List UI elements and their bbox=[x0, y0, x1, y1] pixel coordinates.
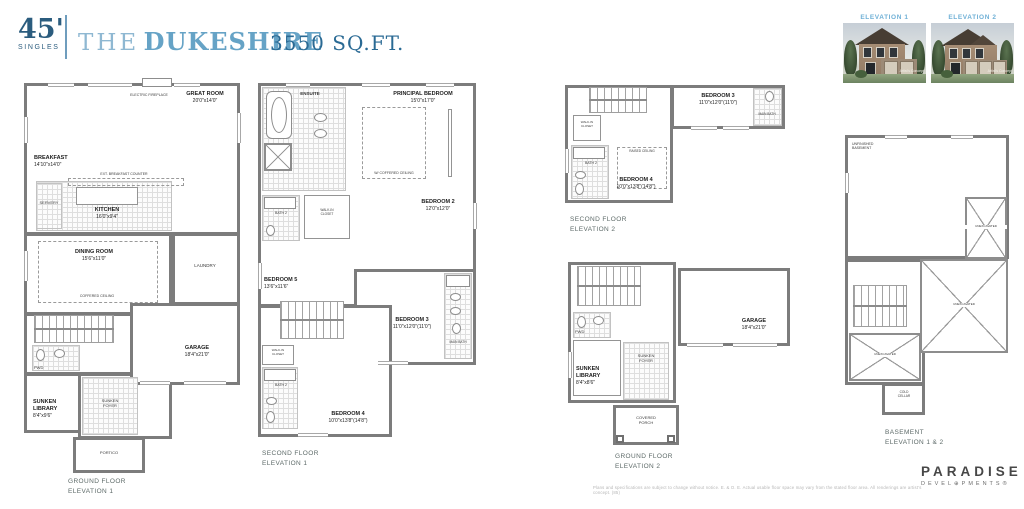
room-label-main-bath: MAIN BATH bbox=[749, 113, 785, 117]
bathtub-icon bbox=[573, 147, 605, 159]
bush-icon bbox=[941, 70, 953, 78]
plan-basement: UNFINISHED BASEMENT UNEXCAVATED UNEXCAVA… bbox=[843, 133, 1018, 453]
watermark: Artist's Concept bbox=[900, 69, 924, 73]
room-label-kitchen: KITCHEN16'0"x9'4" bbox=[84, 207, 130, 220]
window-icon bbox=[378, 361, 408, 365]
room-label-servery: SERVERY bbox=[36, 201, 62, 206]
toilet-icon bbox=[452, 323, 461, 334]
window-icon bbox=[24, 251, 28, 281]
toilet-icon bbox=[266, 225, 275, 236]
plan-caption: GROUND FLOOR ELEVATION 1 bbox=[68, 477, 126, 497]
bathtub-icon bbox=[264, 197, 296, 209]
window-icon bbox=[863, 47, 872, 58]
garage-door-opening bbox=[140, 381, 170, 385]
toilet-icon bbox=[266, 411, 275, 423]
window-icon bbox=[691, 126, 717, 130]
room-label-bath2: BATH 2 bbox=[579, 161, 603, 165]
servery-floor bbox=[36, 183, 62, 229]
room-label-bedroom5: BEDROOM 513'6"x11'6" bbox=[264, 277, 324, 290]
sink-icon bbox=[54, 349, 65, 358]
room-label-garage: GARAGE18'4"x21'0" bbox=[162, 345, 232, 358]
sink-icon bbox=[266, 397, 277, 405]
room-label-laundry: LAUNDRY bbox=[182, 263, 228, 268]
room-label-bedroom2: BEDROOM 212'0"x12'0" bbox=[406, 199, 470, 212]
room-label-bath2: BATH 2 bbox=[268, 211, 294, 215]
room-label-porch: COVERED PORCH bbox=[621, 416, 671, 426]
garage-door-opening bbox=[687, 343, 723, 347]
room-label-dining: DINING ROOM15'6"x11'0" bbox=[54, 249, 134, 262]
sink-icon bbox=[575, 171, 586, 179]
room-label-pwd: PWD bbox=[575, 330, 593, 335]
room-label-foyer: SUNKEN FOYER bbox=[625, 354, 667, 364]
window-icon bbox=[426, 83, 454, 87]
window-icon bbox=[975, 48, 984, 59]
room-label-ensuite: ENSUITE bbox=[294, 91, 326, 96]
room-label-bedroom3: BEDROOM 311'0"x12'0"(11'0") bbox=[681, 93, 755, 106]
room-label-library: SUNKEN LIBRARY8'4"x9'6" bbox=[33, 399, 83, 419]
window-icon bbox=[24, 117, 28, 143]
cold-cellar bbox=[882, 383, 925, 415]
counter-note: EXT. BREAKFAST COUNTER bbox=[82, 172, 166, 176]
room-label-bedroom4: BEDROOM 410'0"x13'8"(14'8") bbox=[306, 411, 390, 424]
window-icon bbox=[949, 48, 958, 59]
room-label-breakfast: BREAKFAST14'10"x14'0" bbox=[34, 155, 94, 168]
window-icon bbox=[237, 113, 241, 143]
unexcavated-label: UNEXCAVATED bbox=[865, 353, 905, 357]
stair-rail bbox=[280, 319, 344, 321]
disclaimer-text: Plans and specifications are subject to … bbox=[593, 485, 923, 495]
model-prefix: THE bbox=[78, 30, 139, 56]
plan-second-floor-elevation-2: WALK-IN CLOSET BATH 2 RAISED CEILING BED… bbox=[565, 83, 793, 243]
room-label-bedroom4: BEDROOM 410'0"x13'8"(14'8") bbox=[601, 177, 671, 190]
watermark: Artist's Concept bbox=[988, 69, 1012, 73]
dining-note: COFFERED CEILING bbox=[72, 294, 122, 298]
window-icon bbox=[565, 149, 569, 173]
plan-ground-floor-elevation-2: PWD SUNKEN LIBRARY8'4"x8'6" SUNKEN FOYER… bbox=[565, 260, 793, 470]
sink-icon bbox=[314, 113, 327, 122]
glass-shower bbox=[264, 143, 292, 171]
toilet-icon bbox=[36, 349, 45, 361]
plan-caption: GROUND FLOOR ELEVATION 2 bbox=[615, 452, 673, 472]
header-divider bbox=[65, 15, 67, 59]
plan-caption: SECOND FLOOR ELEVATION 1 bbox=[262, 449, 319, 469]
toilet-icon bbox=[575, 183, 584, 195]
window-icon bbox=[885, 135, 907, 139]
foyer-floor bbox=[623, 342, 669, 400]
breakfast-counter bbox=[68, 178, 184, 186]
lot-badge: 45' SINGLES bbox=[18, 16, 64, 51]
window-icon bbox=[951, 135, 973, 139]
unexcavated-label: UNEXCAVATED bbox=[965, 225, 1007, 229]
bathtub-icon bbox=[271, 97, 287, 133]
bathtub-icon bbox=[446, 275, 470, 287]
cold-cellar-label: COLD CELLAR bbox=[891, 391, 917, 399]
sink-icon bbox=[450, 307, 461, 315]
tree-icon bbox=[844, 40, 857, 76]
window-icon bbox=[48, 83, 74, 87]
window-icon bbox=[362, 83, 390, 87]
room-label-foyer: SUNKEN FOYER bbox=[88, 399, 132, 409]
room-label-pwd: PWD bbox=[34, 366, 52, 371]
bush-icon bbox=[855, 70, 867, 78]
elevation-2-rendering: Artist's Concept bbox=[931, 23, 1014, 83]
sink-icon bbox=[593, 316, 604, 325]
elevation-1-rendering: Artist's Concept bbox=[843, 23, 926, 83]
plan-ground-floor-elevation-1: GREAT ROOM20'0"x14'0" ELECTRIC FIREPLACE… bbox=[24, 83, 246, 503]
wic-label: WALK-IN CLOSET bbox=[310, 209, 344, 217]
wic-label: WALK-IN CLOSET bbox=[575, 121, 599, 128]
wic-label: WALK-IN CLOSET bbox=[264, 349, 292, 356]
bathtub-icon bbox=[264, 369, 296, 381]
room-label-garage: GARAGE18'4"x21'0" bbox=[723, 318, 785, 331]
brand-name: PARADISE bbox=[921, 464, 1022, 479]
roof-shape bbox=[855, 28, 909, 45]
garage-door-icon bbox=[965, 61, 978, 75]
unexcavated-label: UNEXCAVATED bbox=[938, 303, 990, 307]
room-label-great-room: GREAT ROOM20'0"x14'0" bbox=[174, 91, 236, 104]
lot-type: SINGLES bbox=[18, 44, 64, 51]
window-icon bbox=[845, 173, 849, 193]
window-icon bbox=[723, 126, 749, 130]
garage-block bbox=[130, 303, 240, 385]
porch-post bbox=[616, 435, 624, 443]
window-icon bbox=[889, 47, 898, 58]
sink-icon bbox=[450, 293, 461, 301]
stair-rail bbox=[589, 99, 647, 101]
stair-rail bbox=[34, 328, 114, 330]
brand-logo: PARADISE DEVEL⊕PMENTS® bbox=[921, 464, 1022, 487]
square-footage: 3550 SQ.FT. bbox=[270, 31, 404, 55]
window-icon bbox=[258, 263, 262, 289]
garage-door-icon bbox=[884, 61, 898, 75]
window-icon bbox=[568, 352, 572, 378]
room-label-bedroom3: BEDROOM 311'0"x12'0"(11'0") bbox=[370, 317, 454, 330]
principal-note: W/ COFFERED CEILING bbox=[364, 171, 424, 175]
brochure-page: 45' SINGLES THE DUKESHIRE 3550 SQ.FT. EL… bbox=[0, 0, 1024, 509]
window-icon bbox=[962, 48, 971, 59]
unexcavated-area bbox=[849, 333, 921, 381]
unfinished-basement-label: UNFINISHED BASEMENT bbox=[852, 142, 888, 150]
fireplace-label: ELECTRIC FIREPLACE bbox=[128, 93, 170, 97]
garage-block bbox=[678, 268, 790, 346]
stair-rail bbox=[853, 305, 907, 307]
window-icon bbox=[473, 203, 477, 229]
plan-second-floor-elevation-1: ENSUITE PRINCIPAL BEDROOM15'0"x17'0" W/ … bbox=[258, 83, 482, 503]
stair-rail bbox=[577, 285, 641, 287]
room-label-portico: PORTICO bbox=[77, 451, 141, 456]
elevation-1-label: ELEVATION 1 bbox=[843, 14, 926, 21]
sink-icon bbox=[314, 129, 327, 138]
plan-caption: SECOND FLOOR ELEVATION 2 bbox=[570, 215, 627, 235]
garage-door-opening bbox=[733, 343, 777, 347]
coffered-ceiling-outline bbox=[362, 107, 426, 179]
room-label-bath2: BATH 2 bbox=[268, 383, 294, 387]
plan-caption: BASEMENT ELEVATION 1 & 2 bbox=[885, 428, 944, 448]
porch-post bbox=[667, 435, 675, 443]
lot-size: 45' bbox=[18, 16, 64, 43]
elevation-2-label: ELEVATION 2 bbox=[931, 14, 1014, 21]
garage-door-opening bbox=[184, 381, 226, 385]
dresser bbox=[448, 109, 452, 177]
room-label-main-bath: MAIN BATH bbox=[440, 341, 476, 345]
window-icon bbox=[298, 433, 328, 437]
window-icon bbox=[174, 83, 200, 87]
fireplace-icon bbox=[142, 78, 172, 87]
room-label-principal: PRINCIPAL BEDROOM15'0"x17'0" bbox=[376, 91, 470, 104]
brand-sub: DEVEL⊕PMENTS® bbox=[921, 481, 1022, 487]
walk-in-closet bbox=[304, 195, 350, 239]
toilet-icon bbox=[765, 91, 774, 102]
raised-ceiling-note: RAISED CEILING bbox=[621, 150, 663, 154]
toilet-icon bbox=[577, 316, 586, 328]
laundry-block bbox=[172, 233, 240, 305]
kitchen-island bbox=[76, 187, 138, 205]
room-label-library: SUNKEN LIBRARY8'4"x8'6" bbox=[576, 366, 622, 386]
patio-door-icon bbox=[88, 83, 132, 87]
window-icon bbox=[876, 47, 885, 58]
